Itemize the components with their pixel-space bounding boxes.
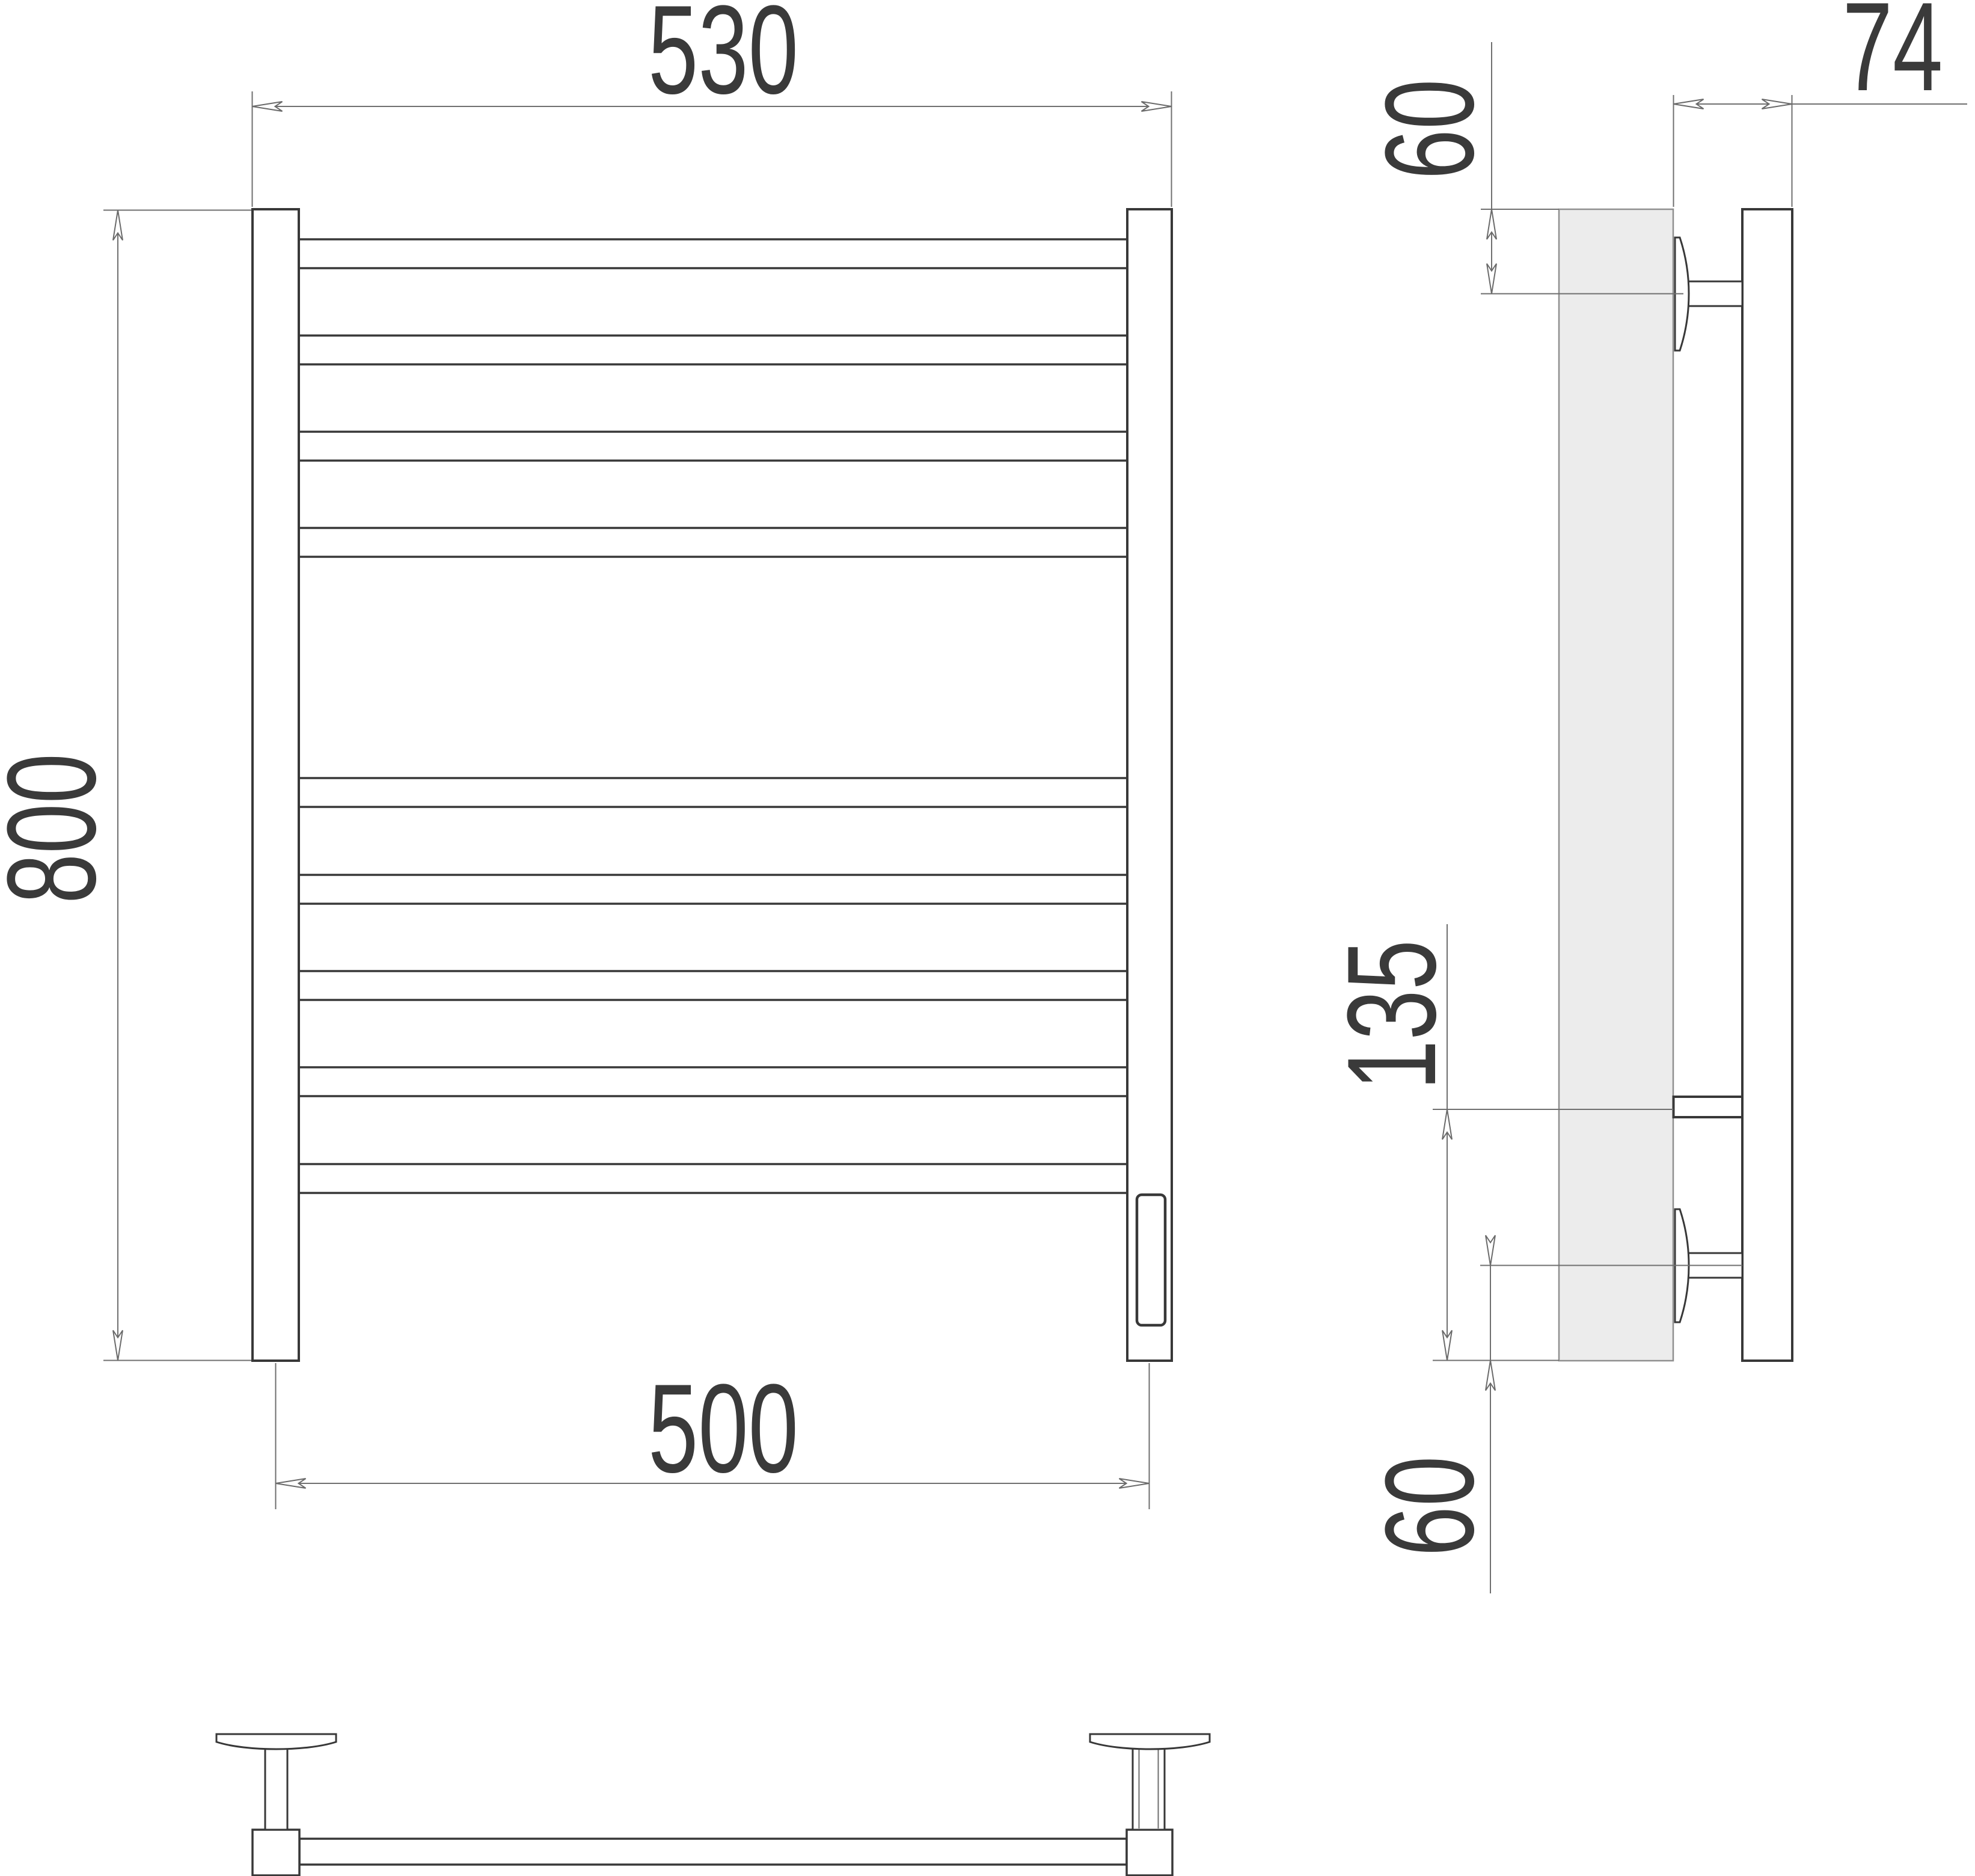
dim-500: 500 bbox=[276, 1358, 1150, 1509]
dim-label-front-height: 800 bbox=[0, 753, 122, 904]
rung bbox=[299, 432, 1127, 461]
connection-block bbox=[1674, 1097, 1743, 1117]
right-post bbox=[1127, 209, 1172, 1361]
dim-label-bottom-offset: 60 bbox=[1359, 1456, 1500, 1557]
dim-label-top-offset: 60 bbox=[1359, 79, 1500, 180]
rung bbox=[299, 336, 1127, 364]
rung bbox=[299, 875, 1127, 904]
left-bracket-flange bbox=[216, 1734, 336, 1749]
side-view bbox=[1559, 209, 1792, 1361]
wall-strip bbox=[1559, 209, 1673, 1361]
dim-530: 530 bbox=[253, 0, 1172, 207]
front-dimensions: 530 800 500 bbox=[0, 0, 1172, 1509]
dim-label-connection-span: 135 bbox=[1321, 940, 1462, 1090]
rung bbox=[299, 239, 1127, 268]
right-bracket-flange bbox=[1090, 1734, 1210, 1749]
heating-element-box bbox=[1137, 1195, 1165, 1325]
side-post-profile bbox=[1742, 209, 1792, 1361]
rung bbox=[299, 1164, 1127, 1193]
right-bracket-stem bbox=[1133, 1743, 1165, 1830]
bottom-rail bbox=[299, 1839, 1127, 1865]
dim-label-front-width: 530 bbox=[648, 0, 798, 120]
left-post bbox=[253, 209, 299, 1361]
left-bracket-block bbox=[253, 1830, 299, 1875]
upper-bracket-stem bbox=[1688, 281, 1742, 306]
dim-label-mounting-width: 500 bbox=[648, 1358, 798, 1499]
towel-rail-technical-drawing: 530 800 500 bbox=[0, 0, 1975, 1876]
rung bbox=[299, 1067, 1127, 1096]
bottom-view bbox=[216, 1734, 1210, 1875]
dim-74: 74 bbox=[1674, 0, 1968, 207]
rung bbox=[299, 971, 1127, 1000]
right-bracket-block bbox=[1127, 1830, 1172, 1875]
front-view bbox=[253, 209, 1172, 1361]
dim-label-depth: 74 bbox=[1843, 0, 1943, 117]
dim-800: 800 bbox=[0, 210, 251, 1361]
dim-arrow bbox=[1486, 1236, 1495, 1266]
rung bbox=[299, 528, 1127, 557]
rung bbox=[299, 778, 1127, 807]
left-bracket-stem bbox=[265, 1743, 287, 1830]
